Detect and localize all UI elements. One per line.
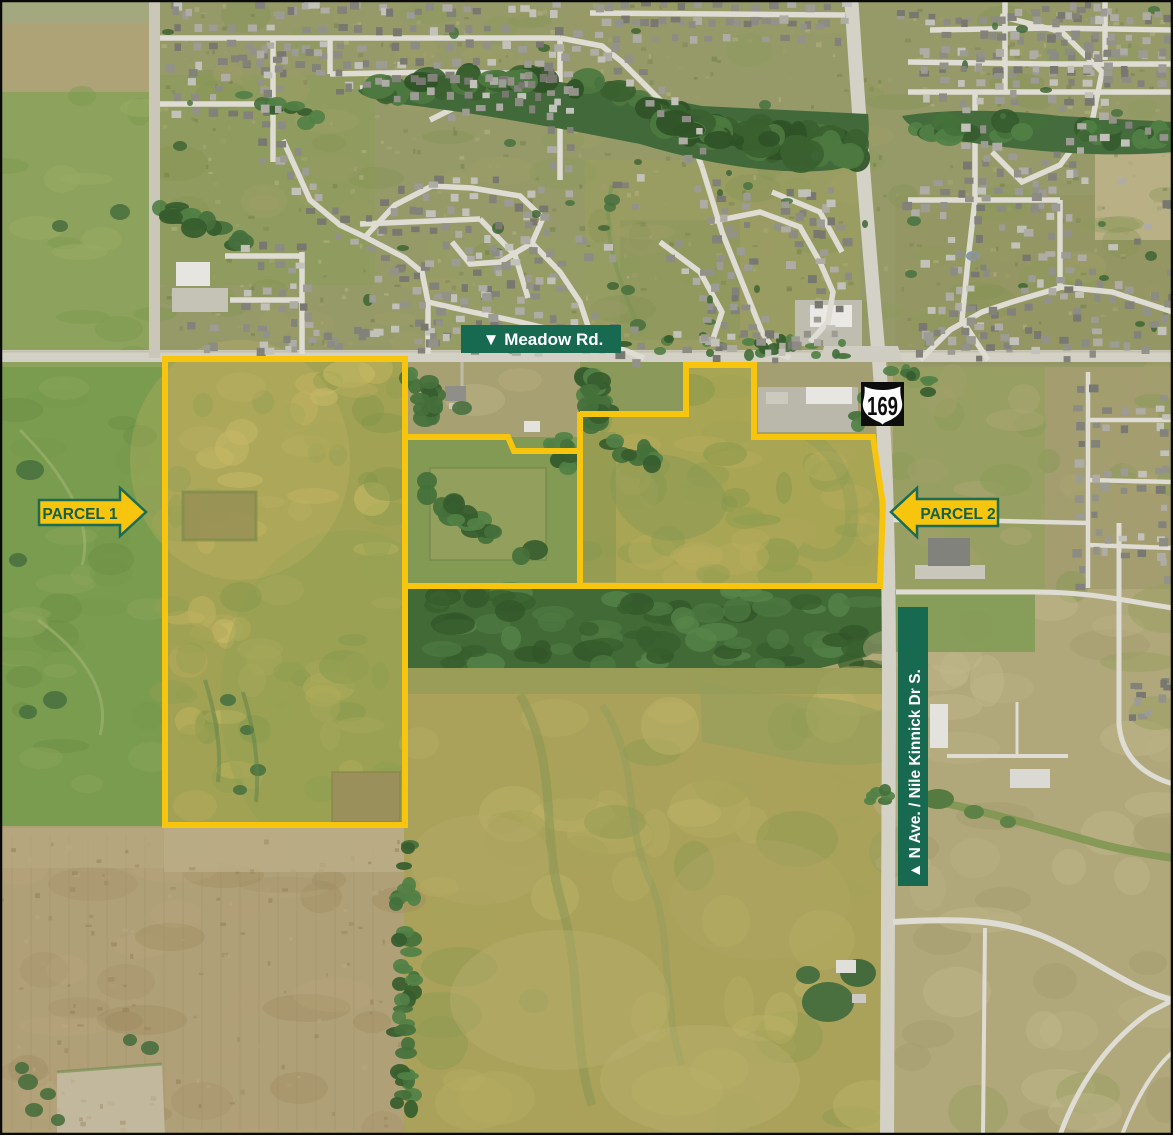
svg-text:PARCEL 1: PARCEL 1 <box>42 506 118 523</box>
svg-text:PARCEL 2: PARCEL 2 <box>920 506 995 523</box>
svg-text:169: 169 <box>867 391 898 421</box>
svg-text:▲ N Ave. / Nile Kinnick Dr S.: ▲ N Ave. / Nile Kinnick Dr S. <box>907 669 924 878</box>
svg-text:▼ Meadow Rd.: ▼ Meadow Rd. <box>483 330 604 349</box>
